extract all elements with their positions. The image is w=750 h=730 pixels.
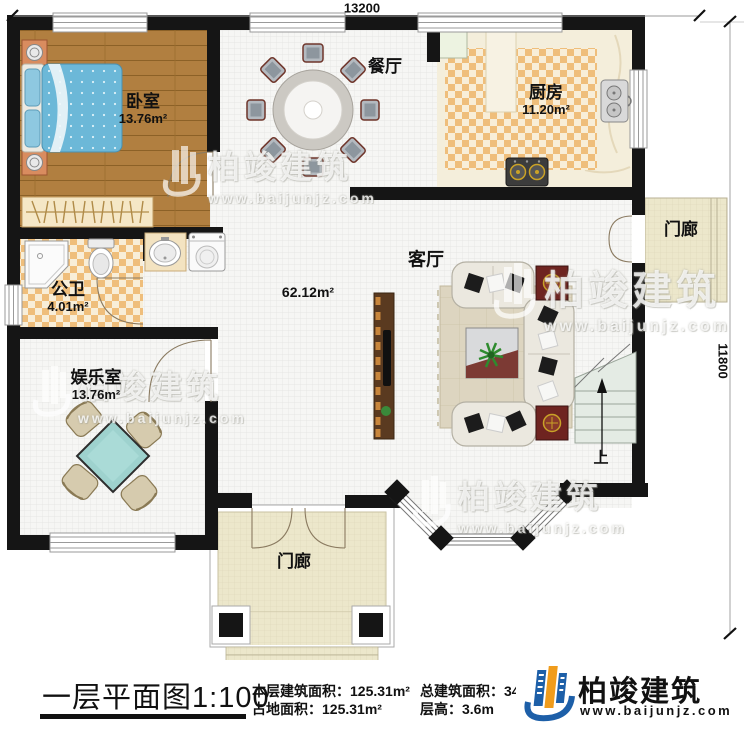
floorplan-page: 柏竣建筑 www.baijunjz.com 柏竣建筑 www.baijunjz.… bbox=[0, 0, 750, 730]
window-left-bathroom bbox=[5, 285, 22, 325]
window-right-kitchen bbox=[630, 70, 647, 148]
bed bbox=[22, 64, 122, 152]
kitchen-area: 11.20m² bbox=[522, 102, 570, 117]
dimension-right: 11800 bbox=[716, 343, 731, 378]
bedroom-area: 13.76m² bbox=[119, 111, 167, 126]
stove bbox=[506, 158, 548, 186]
brand-logo-icon bbox=[518, 664, 576, 726]
porch-right bbox=[645, 198, 727, 302]
entertainment-label: 娱乐室 13.76m² bbox=[71, 368, 122, 402]
sofa-top bbox=[452, 262, 534, 308]
stat-floor-area-label: 本层建筑面积： bbox=[252, 683, 350, 699]
brand-block: 柏竣建筑 www.baijunjz.com bbox=[516, 660, 750, 730]
entertainment-name: 娱乐室 bbox=[71, 368, 122, 388]
living-name: 客厅 bbox=[408, 250, 444, 271]
coffee-table bbox=[466, 328, 518, 378]
stat-footprint-value: 125.31m² bbox=[322, 701, 382, 717]
porch-bottom bbox=[210, 505, 394, 667]
kitchen-sink bbox=[601, 80, 631, 122]
stairs-direction: 上 bbox=[593, 449, 608, 466]
dimension-top: 13200 bbox=[344, 1, 380, 16]
kitchen-name: 厨房 bbox=[522, 83, 570, 103]
porch-bottom-label: 门廊 bbox=[277, 552, 311, 572]
stat-total-area-label: 总建筑面积： bbox=[420, 683, 504, 699]
dining-name: 餐厅 bbox=[368, 57, 402, 77]
floorplan-drawing bbox=[0, 0, 750, 668]
plan-title: 一层平面图1:100 bbox=[42, 674, 270, 716]
fridge bbox=[439, 31, 467, 58]
plan-title-text: 一层平面图 bbox=[42, 682, 192, 714]
bedroom-name: 卧室 bbox=[119, 92, 167, 112]
bathroom-label: 公卫 4.01m² bbox=[47, 280, 88, 314]
dining-label: 餐厅 bbox=[368, 57, 402, 77]
living-area: 62.12m² bbox=[282, 284, 334, 300]
window-entertainment bbox=[50, 533, 175, 552]
stat-height-value: 3.6m bbox=[462, 701, 494, 717]
side-table bbox=[536, 266, 568, 300]
side-table bbox=[536, 406, 568, 440]
living-label: 客厅 bbox=[408, 250, 444, 271]
bedroom-label: 卧室 13.76m² bbox=[119, 92, 167, 126]
porch-right-name: 门廊 bbox=[664, 220, 698, 240]
washing-machine bbox=[189, 233, 225, 271]
stat-height-label: 层高： bbox=[420, 701, 462, 717]
hall-fixtures bbox=[145, 233, 225, 271]
stat-footprint-label: 占地面积： bbox=[252, 701, 322, 717]
sofa-right bbox=[524, 298, 574, 410]
wardrobe bbox=[22, 197, 153, 227]
tv bbox=[383, 330, 391, 386]
porch-right-label: 门廊 bbox=[664, 220, 698, 240]
tv-cabinet bbox=[374, 293, 394, 439]
toilet bbox=[88, 239, 114, 278]
bathroom-name: 公卫 bbox=[47, 280, 88, 300]
stairs-up-label: 上 bbox=[593, 449, 608, 466]
entertainment-area: 13.76m² bbox=[71, 387, 122, 402]
title-block: 一层平面图1:100 本层建筑面积：125.31m²总建筑面积：342.62m²… bbox=[0, 660, 750, 730]
porch-bottom-name: 门廊 bbox=[277, 552, 311, 572]
small-plant bbox=[381, 406, 391, 416]
kitchen-label: 厨房 11.20m² bbox=[522, 83, 570, 117]
bathroom-area: 4.01m² bbox=[47, 299, 88, 314]
living-area-label: 62.12m² bbox=[282, 284, 334, 300]
sofa-bottom bbox=[452, 402, 536, 446]
title-underline bbox=[40, 714, 246, 719]
brand-url: www.baijunjz.com bbox=[580, 703, 732, 718]
stat-floor-area-value: 125.31m² bbox=[350, 683, 410, 699]
